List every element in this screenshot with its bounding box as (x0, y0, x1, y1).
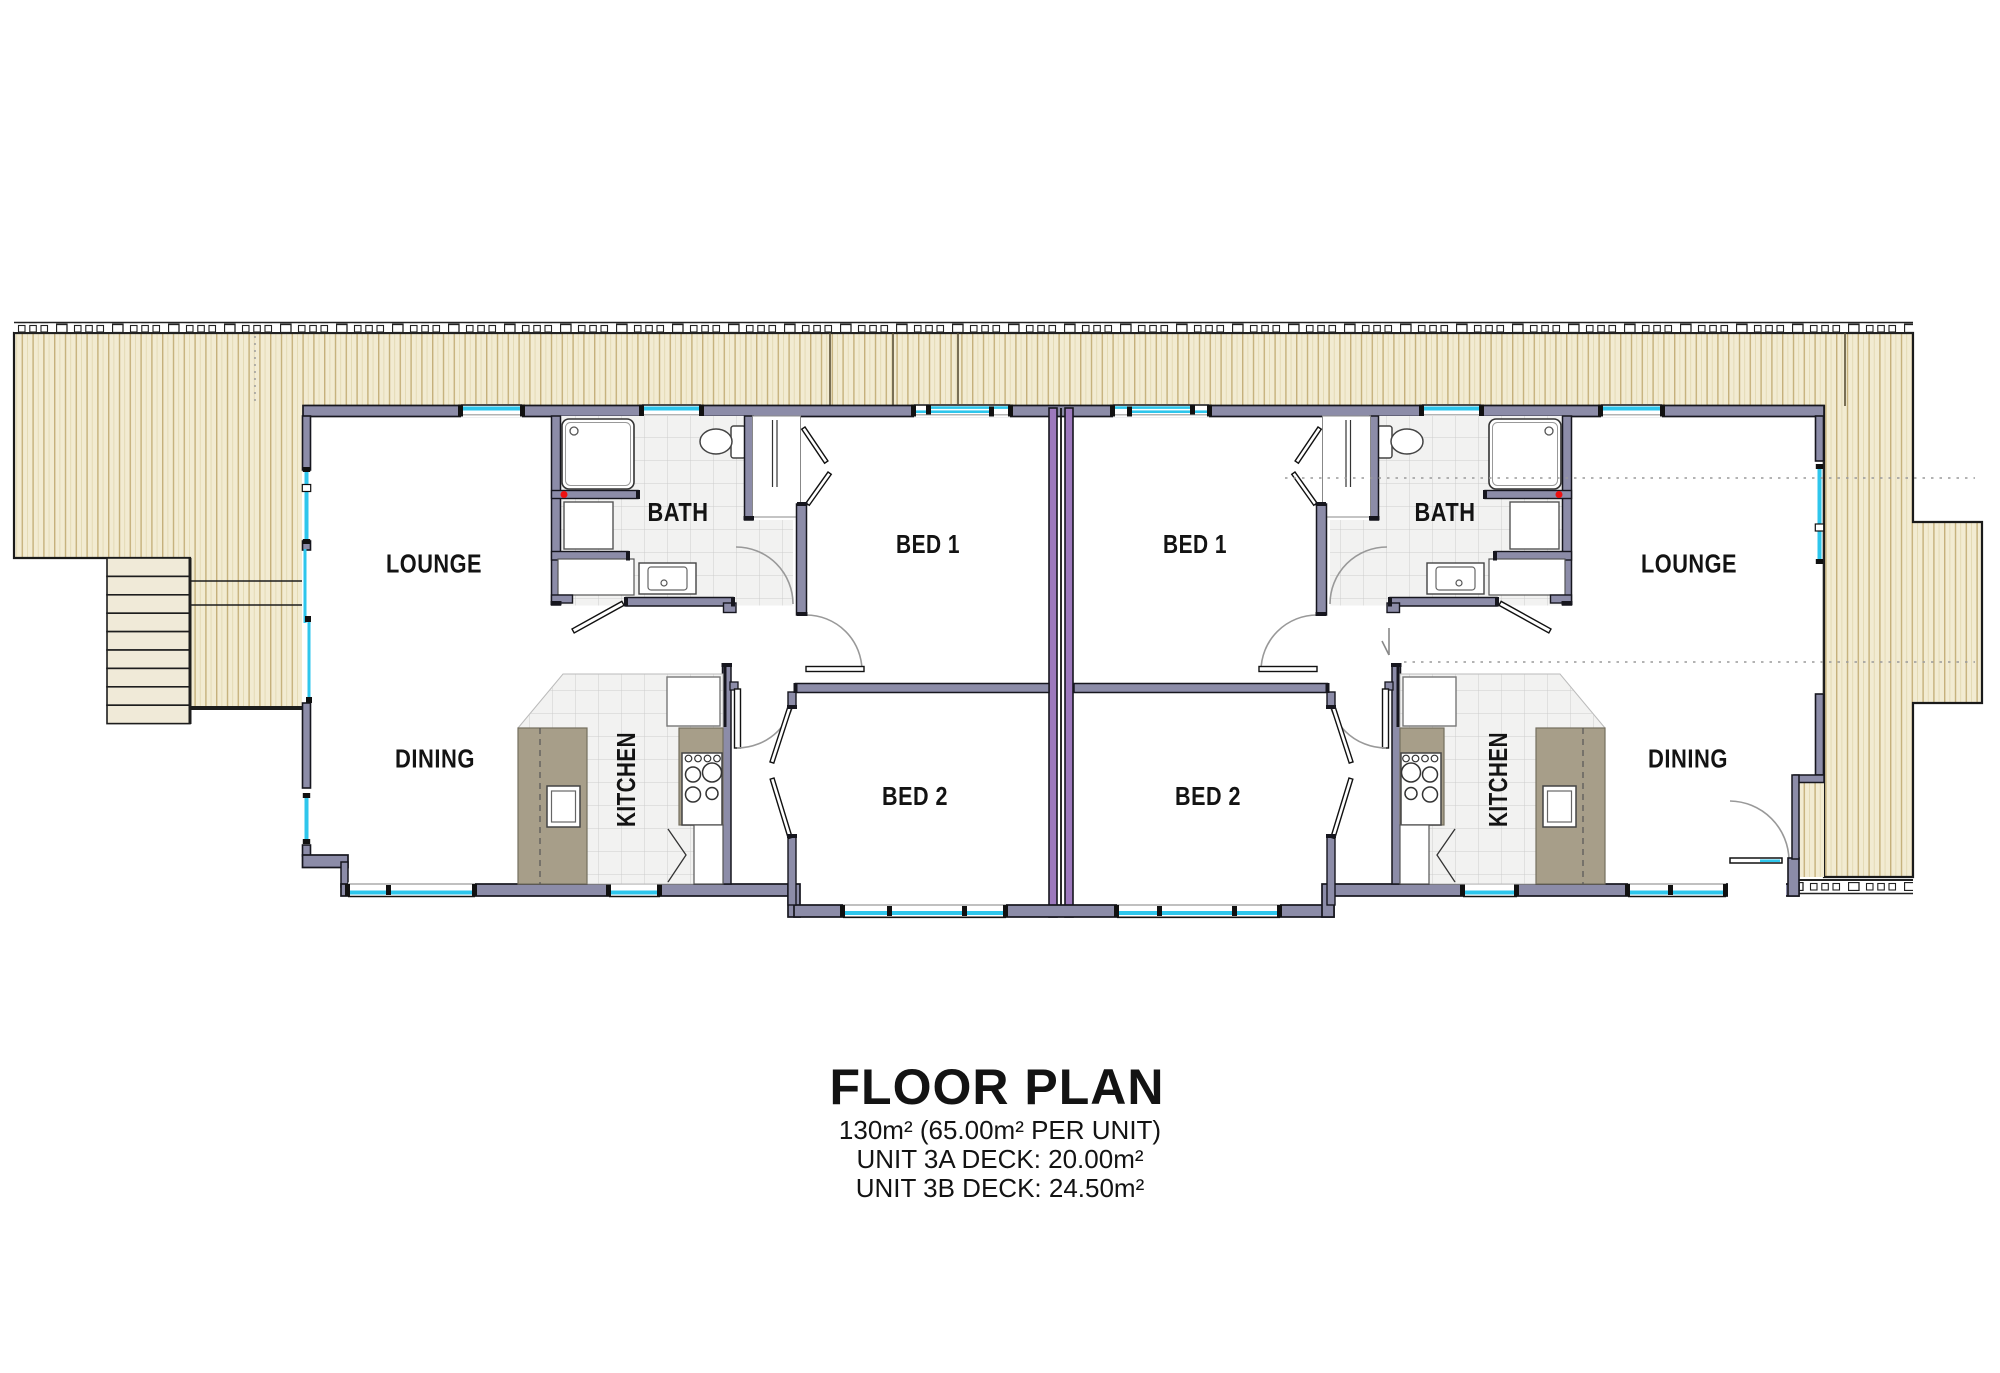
svg-text:130m² (65.00m² PER UNIT): 130m² (65.00m² PER UNIT) (839, 1115, 1161, 1145)
svg-text:BED 1: BED 1 (1163, 529, 1227, 559)
svg-text:DINING: DINING (395, 744, 475, 774)
svg-text:BATH: BATH (1415, 497, 1476, 527)
svg-text:KITCHEN: KITCHEN (1483, 732, 1513, 827)
svg-text:FLOOR PLAN: FLOOR PLAN (830, 1059, 1165, 1115)
svg-text:BATH: BATH (648, 497, 709, 527)
svg-text:UNIT 3B DECK: 24.50m²: UNIT 3B DECK: 24.50m² (856, 1173, 1145, 1203)
svg-text:BED 2: BED 2 (1175, 781, 1241, 811)
svg-text:UNIT 3A DECK: 20.00m²: UNIT 3A DECK: 20.00m² (856, 1144, 1143, 1174)
svg-text:KITCHEN: KITCHEN (611, 732, 641, 827)
svg-text:LOUNGE: LOUNGE (1641, 549, 1737, 579)
svg-text:BED 1: BED 1 (896, 529, 960, 559)
svg-text:DINING: DINING (1648, 744, 1728, 774)
svg-text:LOUNGE: LOUNGE (386, 549, 482, 579)
svg-text:BED 2: BED 2 (882, 781, 948, 811)
